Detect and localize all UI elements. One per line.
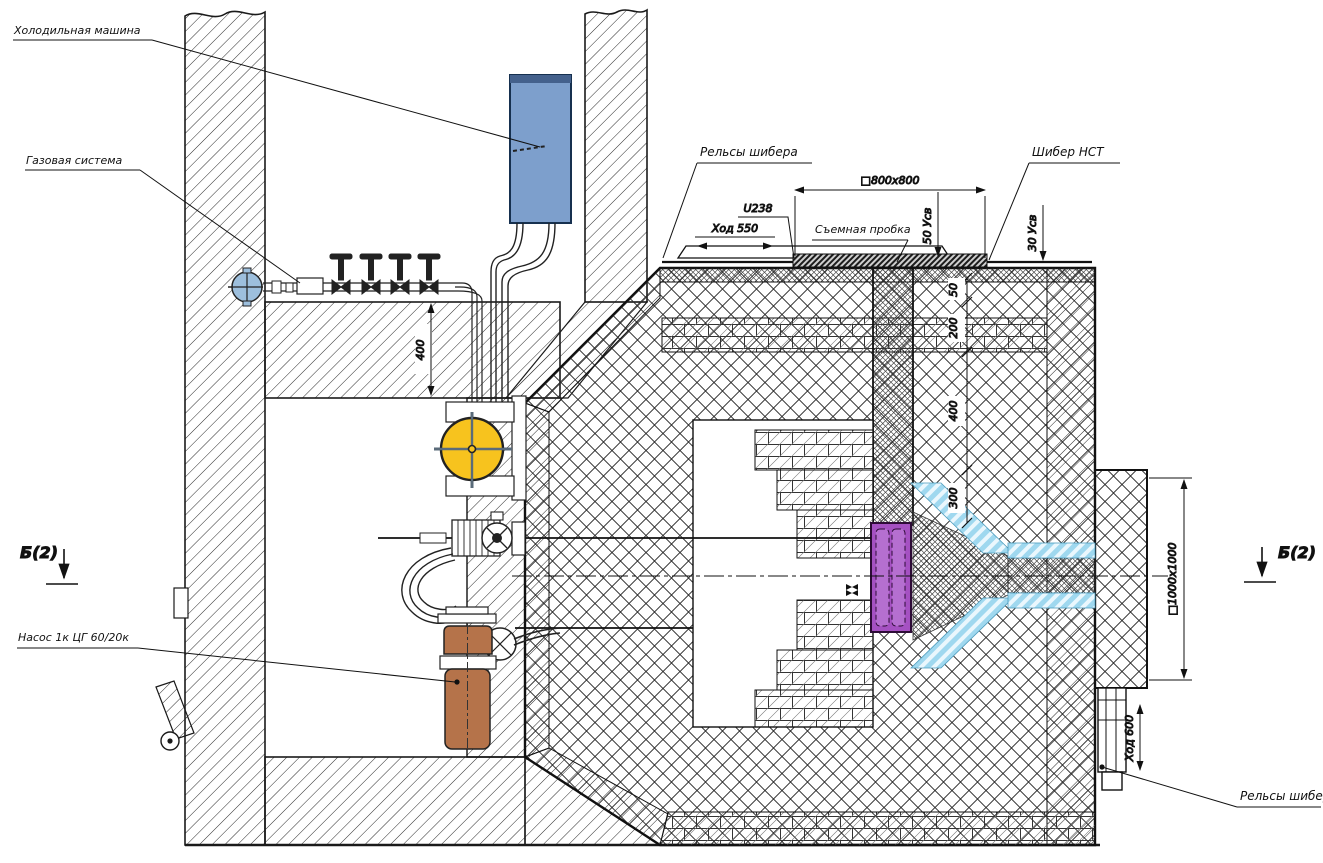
pump-flange xyxy=(438,614,496,623)
bracket-pivot-center xyxy=(167,738,172,743)
removable-plug-column xyxy=(873,268,913,525)
dim-rail-profile: U238 xyxy=(743,202,772,215)
top-brick-band xyxy=(662,318,1047,352)
section-mark-right: Б(2) xyxy=(1278,543,1316,562)
wall-notch xyxy=(174,588,188,618)
lining-band-left xyxy=(525,403,549,757)
drawing-canvas: □800х800 Ход 550 U238 50 Усв 30 Усв 400 … xyxy=(0,0,1323,863)
nozzle-insert-left xyxy=(876,529,889,626)
rail-post xyxy=(1098,688,1126,772)
dim-layer-50: 50 xyxy=(947,283,960,297)
label-shiber-rails-top: Рельсы шибера xyxy=(700,145,798,159)
dim-weld-30: 30 Усв xyxy=(1026,215,1039,252)
dim-opening-side: □1000х1000 xyxy=(1166,543,1179,616)
dim-opening-top: □800х800 xyxy=(861,174,920,187)
nozzle-insert-right xyxy=(892,529,905,626)
floor-slab xyxy=(265,757,525,845)
furnace-section-drawing: □800х800 Ход 550 U238 50 Усв 30 Усв 400 … xyxy=(0,0,1323,863)
ceiling-slab xyxy=(265,302,560,398)
gas-fitting xyxy=(297,278,323,294)
bottom-brick-band xyxy=(660,812,1095,845)
label-shiber-rails-bottom: Рельсы шибера xyxy=(1240,789,1323,803)
valve-bracket xyxy=(512,522,525,555)
section-mark-left: Б(2) xyxy=(20,543,58,562)
label-refrigeration-machine: Холодильная машина xyxy=(13,24,141,37)
bottom-shiber-rails xyxy=(1098,688,1126,790)
machine-top-bar xyxy=(510,75,571,83)
dim-weld-50: 50 Усв xyxy=(921,208,934,245)
label-gas-system: Газовая система xyxy=(26,154,123,167)
rail-foot xyxy=(1102,772,1122,790)
dim-stroke-bottom: Ход 600 xyxy=(1123,715,1136,762)
refrigeration-machine xyxy=(510,75,571,223)
dim-ceiling-400: 400 xyxy=(414,340,427,361)
label-removable-plug: Съемная пробка xyxy=(815,223,911,236)
dim-layer-400: 400 xyxy=(947,401,960,422)
label-shiber-nst: Шибер НСТ xyxy=(1032,145,1105,159)
gas-valves xyxy=(330,254,440,294)
left-wall xyxy=(185,11,265,845)
right-protrusion xyxy=(1095,470,1147,688)
dim-stroke-top: Ход 550 xyxy=(711,222,758,235)
dim-layer-200: 200 xyxy=(947,318,960,339)
cyan-strip-top xyxy=(1008,543,1095,558)
dim-layer-300: 300 xyxy=(947,488,960,509)
nozzle-block xyxy=(871,523,911,632)
cyan-strip-bottom xyxy=(1008,593,1095,608)
shiber-plate-closed xyxy=(793,254,987,267)
label-pump: Насос 1к ЦГ 60/20к xyxy=(18,631,129,644)
bellows-fitting xyxy=(420,533,446,543)
upper-right-wall xyxy=(585,10,647,302)
